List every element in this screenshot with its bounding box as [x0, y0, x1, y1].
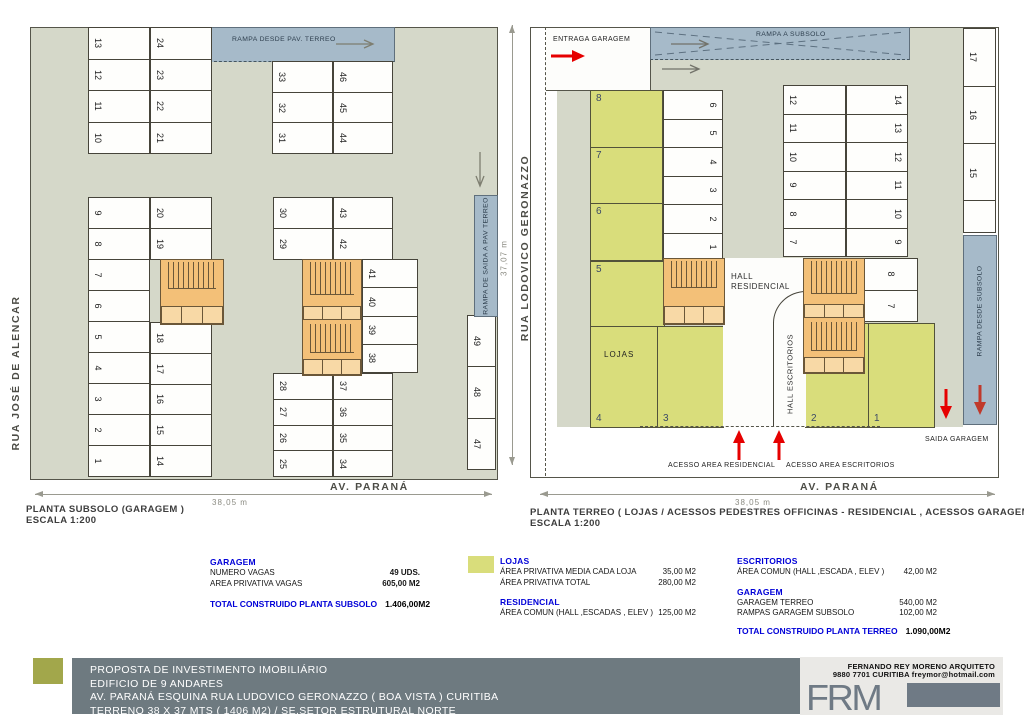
stall-number: 3 — [92, 393, 104, 405]
frm-logo: FRM — [806, 682, 880, 713]
stall-number: 13 — [892, 122, 904, 134]
stair-landing-cells — [664, 306, 724, 324]
drawing-sheet: RUA JOSÉ DE ALENCAR RAMPA DESDE PAV. TER… — [0, 0, 1024, 724]
stall-number: 41 — [366, 268, 378, 280]
dimension-line-37m — [512, 25, 513, 465]
stall-number: 10 — [92, 132, 104, 144]
stall-number: 11 — [892, 179, 904, 191]
parking-group-j: 4342 — [333, 197, 393, 260]
legend-row: NUMERO VAGAS49 UDS. — [210, 568, 420, 579]
legend-title: RESIDENCIAL — [500, 597, 696, 607]
legend-title: LOJAS — [500, 556, 696, 566]
parking-stall: 42 — [333, 228, 393, 260]
stair-treads — [671, 261, 717, 288]
loja-number: 6 — [596, 206, 602, 217]
parking-group-t-b: 121110987 — [783, 85, 846, 257]
hall-label-line: HALL — [731, 272, 790, 282]
stall-number: 2 — [92, 424, 104, 436]
hall-residencial-label: HALL RESIDENCIAL — [731, 272, 790, 291]
stall-number: 10 — [892, 208, 904, 220]
legend-title: GARAGEM — [210, 557, 420, 567]
parking-stall: 30 — [273, 197, 333, 229]
driveway-arrow-icon — [660, 63, 702, 75]
logo-olive-square — [33, 658, 63, 684]
stall-number: 10 — [787, 151, 799, 163]
legend-label: GARAGEM TERREO — [737, 598, 813, 609]
legend-row: ÁREA PRIVATIVA TOTAL280,00 M2 — [500, 578, 696, 589]
parking-stall: 20 — [150, 197, 212, 229]
parking-group-b: 24232221 — [150, 27, 212, 154]
parking-stall: 36 — [333, 399, 393, 426]
entry-red-arrow-icon — [550, 48, 586, 64]
loja-unit: 8 — [590, 90, 663, 148]
stall-number: 38 — [366, 352, 378, 364]
parking-group-k: 37363534 — [333, 373, 393, 477]
stall-number: 31 — [276, 132, 288, 144]
dimension-text-38m-left: 38,05 m — [212, 498, 248, 507]
parking-stall: 11 — [88, 90, 150, 123]
dimension-text-37m: 37,07 m — [500, 240, 509, 276]
stall-number: 7 — [787, 236, 799, 248]
stall-number: 47 — [471, 438, 483, 450]
parking-stall: 9 — [783, 171, 846, 201]
parking-stall: 29 — [273, 228, 333, 260]
legend-row: ÁREA COMUN (HALL ,ESCADA , ELEV )42,00 M… — [737, 567, 937, 578]
lojas-column: 876 — [590, 90, 663, 261]
parking-stall: 21 — [150, 122, 212, 155]
parking-stall: 8 — [863, 258, 918, 291]
legend-label: ÁREA COMUN (HALL ,ESCADAS , ELEV ) — [500, 608, 653, 619]
parking-stall: 35 — [333, 425, 393, 452]
ramp-to-basement: RAMPA A SUBSOLO — [650, 27, 910, 60]
ramp-to-basement-label: RAMPA A SUBSOLO — [753, 31, 829, 38]
parking-stall: 9 — [846, 228, 908, 258]
parking-stall: 22 — [150, 90, 212, 123]
parking-stall: 1 — [88, 445, 150, 477]
parking-group-e: 987654321 — [88, 197, 150, 477]
stairs-block-west — [160, 259, 224, 325]
stair-treads — [811, 261, 857, 294]
parking-stall: 13 — [846, 114, 908, 144]
parking-group-m: 494847 — [467, 315, 496, 470]
parking-stall: 3 — [663, 176, 723, 206]
stall-number: 8 — [885, 268, 897, 280]
stall-number: 46 — [337, 71, 349, 83]
parking-stall: 39 — [362, 316, 418, 345]
stall-number: 19 — [154, 238, 166, 250]
stair-treads — [310, 324, 354, 353]
parking-stall: 6 — [663, 90, 723, 120]
dimension-line-38m-left — [35, 494, 492, 495]
legend-value: 102,00 M2 — [899, 608, 937, 619]
ramp-exit-to-ground: RAMPA DE SAIDA A PAV TERREO — [474, 195, 498, 317]
dimension-line-38m-right — [540, 494, 995, 495]
ramp-from-ground-floor: RAMPA DESDE PAV. TERREO — [209, 27, 395, 62]
parking-group-c: 333231 — [272, 61, 333, 154]
terreo-title: PLANTA TERREO ( LOJAS / ACESSOS PEDESTRE… — [530, 507, 1024, 518]
legend-value: 35,00 M2 — [663, 567, 696, 578]
subsolo-title: PLANTA SUBSOLO (GARAGEM ) — [26, 504, 184, 515]
street-label-av-parana-right: AV. PARANÁ — [800, 481, 879, 493]
exit-red-arrow-icon — [973, 384, 987, 416]
loja-unit: 7 — [590, 147, 663, 205]
stall-number: 5 — [92, 331, 104, 343]
loja-unit: 6 — [590, 203, 663, 261]
stall-number: 44 — [337, 132, 349, 144]
ramp-from-basement: RAMPA DESDE SUBSOLO — [963, 235, 997, 425]
stair-treads — [811, 322, 857, 351]
parking-stall: 12 — [846, 142, 908, 172]
project-line-4: TERRENO 38 X 37 MTS ( 1406 M2) / SE.SETO… — [90, 705, 800, 719]
ramp-from-ground-floor-label: RAMPA DESDE PAV. TERREO — [232, 36, 336, 43]
parking-stall: 47 — [467, 418, 496, 470]
street-label-av-parana-left: AV. PARANÁ — [330, 481, 409, 493]
parking-stall: 37 — [333, 373, 393, 400]
empty-stall — [963, 200, 996, 233]
parking-stall: 23 — [150, 59, 212, 92]
parking-stall: 11 — [846, 171, 908, 201]
stall-number: 13 — [92, 37, 104, 49]
parking-stall: 7 — [88, 259, 150, 291]
hall-escritorios-label: HALL ESCRITORIOS — [786, 334, 795, 414]
stair-landing-cells — [161, 306, 223, 324]
parking-stall: 10 — [783, 142, 846, 172]
stall-number: 26 — [277, 432, 289, 444]
dimension-text-38m-right: 38,05 m — [735, 498, 771, 507]
stall-number: 39 — [366, 324, 378, 336]
stall-number: 9 — [92, 207, 104, 219]
stall-number: 9 — [787, 179, 799, 191]
stall-number: 32 — [276, 102, 288, 114]
loja-number: 2 — [811, 413, 817, 424]
stall-number: 22 — [154, 100, 166, 112]
stall-number: 3 — [707, 184, 719, 196]
parking-group-i: 28272625 — [273, 373, 333, 477]
parking-stall: 4 — [88, 352, 150, 384]
terreo-scale: ESCALA 1:200 — [530, 518, 600, 529]
loja-number: 4 — [596, 413, 602, 424]
parking-stall: 43 — [333, 197, 393, 229]
stairs-block-center — [302, 259, 362, 376]
stall-number: 30 — [277, 207, 289, 219]
parking-stall: 7 — [783, 228, 846, 258]
stair-landing-cells — [303, 306, 361, 320]
parking-stall: 49 — [467, 315, 496, 367]
loja-number: 8 — [596, 93, 602, 104]
legend-total-label: TOTAL CONSTRUIDO PLANTA SUBSOLO — [210, 599, 377, 609]
parking-stall: 16 — [150, 384, 212, 416]
stall-number: 49 — [471, 335, 483, 347]
loja-number: 7 — [596, 150, 602, 161]
parking-stall: 26 — [273, 425, 333, 452]
legend-label: NUMERO VAGAS — [210, 568, 275, 579]
stair-landing-cells — [804, 304, 864, 318]
legend-escritorios-garagem: ESCRITORIOS ÁREA COMUN (HALL ,ESCADA , E… — [737, 556, 937, 636]
parking-stall: 24 — [150, 27, 212, 60]
loja-4: 4 — [590, 326, 659, 428]
parking-group-t-e: 87 — [863, 258, 918, 322]
parking-group-l: 41403938 — [362, 259, 418, 373]
stall-number: 12 — [92, 69, 104, 81]
parking-group-d: 464544 — [333, 61, 393, 154]
legend-row: GARAGEM TERREO540,00 M2 — [737, 598, 937, 609]
stairs-block-residencial — [663, 258, 725, 325]
stall-number: 1 — [707, 241, 719, 253]
parking-stall: 5 — [88, 321, 150, 353]
stall-number: 6 — [92, 300, 104, 312]
stall-number: 43 — [337, 207, 349, 219]
legend-label: RAMPAS GARAGEM SUBSOLO — [737, 608, 854, 619]
stair-landing-cells — [303, 359, 361, 375]
subsolo-scale: ESCALA 1:200 — [26, 515, 96, 526]
parking-stall: 13 — [88, 27, 150, 60]
legend-total: TOTAL CONSTRUIDO PLANTA SUBSOLO1.406,00M… — [210, 599, 420, 609]
stall-number: 28 — [277, 380, 289, 392]
stall-number: 4 — [92, 362, 104, 374]
parking-stall: 38 — [362, 344, 418, 373]
project-line-3: AV. PARANÁ ESQUINA RUA LUDOVICO GERONAZZ… — [90, 691, 800, 705]
stall-number: 15 — [967, 167, 979, 179]
building-edge-dashed — [640, 426, 880, 427]
access-residencial-arrow-icon — [731, 430, 747, 461]
stall-number: 33 — [276, 71, 288, 83]
legend-lojas-residencial: LOJAS ÁREA PRIVATIVA MEDIA CADA LOJA35,0… — [500, 556, 696, 619]
parking-stall: 2 — [663, 204, 723, 234]
legend-label: AREA PRIVATIVA VAGAS — [210, 579, 302, 590]
lojas-area-label: LOJAS — [604, 350, 634, 359]
project-line-1: PROPOSTA DE INVESTIMENTO IMOBILIÁRIO — [90, 664, 800, 678]
access-residencial-label: ACESSO AREA RESIDENCIAL — [668, 462, 775, 469]
stall-number: 34 — [337, 458, 349, 470]
parking-stall: 12 — [783, 85, 846, 115]
parking-stall: 6 — [88, 290, 150, 322]
parking-stall: 17 — [963, 28, 996, 87]
parking-stall: 15 — [150, 414, 212, 446]
stairs-block-escritorios — [803, 258, 865, 374]
stall-number: 7 — [92, 269, 104, 281]
stall-number: 16 — [967, 109, 979, 121]
parking-stall: 46 — [333, 61, 393, 93]
stall-number: 40 — [366, 296, 378, 308]
down-arrow-icon — [473, 150, 487, 190]
parking-stall: 8 — [88, 228, 150, 260]
garage-entry-label: ENTRAGA GARAGEM — [553, 36, 630, 43]
stall-number: 35 — [337, 432, 349, 444]
stall-number: 9 — [892, 236, 904, 248]
parking-stall: 45 — [333, 92, 393, 124]
parking-stall: 34 — [333, 450, 393, 477]
stall-number: 37 — [337, 380, 349, 392]
stall-number: 42 — [337, 238, 349, 250]
stall-number: 17 — [967, 51, 979, 63]
hall-label-line: RESIDENCIAL — [731, 282, 790, 292]
parking-stall: 17 — [150, 353, 212, 385]
parking-stall: 18 — [150, 322, 212, 354]
stall-number: 11 — [787, 122, 799, 134]
garage-entry-area: ENTRAGA GARAGEM — [546, 28, 651, 91]
loja-number: 5 — [596, 264, 602, 275]
stall-number: 5 — [707, 127, 719, 139]
parking-stall: 10 — [846, 199, 908, 229]
stall-number: 7 — [885, 300, 897, 312]
stall-number: 21 — [154, 132, 166, 144]
exit-red-arrow-icon — [939, 388, 953, 420]
stall-number: 17 — [154, 363, 166, 375]
project-line-2: EDIFICIO DE 9 ANDARES — [90, 678, 800, 692]
legend-total-label: TOTAL CONSTRUIDO PLANTA TERREO — [737, 626, 898, 636]
legend-value: 125,00 M2 — [658, 608, 696, 619]
parking-stall: 16 — [963, 86, 996, 145]
property-line-dashed — [545, 27, 546, 476]
stall-number: 27 — [277, 406, 289, 418]
parking-group-a: 13121110 — [88, 27, 150, 154]
access-escritorios-arrow-icon — [771, 430, 787, 461]
stall-number: 23 — [154, 69, 166, 81]
stall-number: 18 — [154, 332, 166, 344]
stall-number: 8 — [92, 238, 104, 250]
parking-group-t-a: 654321 — [663, 90, 723, 262]
stall-number: 4 — [707, 156, 719, 168]
legend-row: ÁREA PRIVATIVA MEDIA CADA LOJA35,00 M2 — [500, 567, 696, 578]
parking-stall: 25 — [273, 450, 333, 477]
street-label-rua-jose-de-alencar: RUA JOSÉ DE ALENCAR — [10, 295, 22, 450]
parking-stall: 19 — [150, 228, 212, 260]
legend-label: ÁREA PRIVATIVA MEDIA CADA LOJA — [500, 567, 637, 578]
ramp-from-basement-label: RAMPA DESDE SUBSOLO — [977, 266, 984, 357]
parking-stall: 11 — [783, 114, 846, 144]
parking-group-g: 1817161514 — [150, 322, 212, 477]
stair-treads — [310, 262, 354, 295]
legend-title: ESCRITORIOS — [737, 556, 937, 566]
parking-stall: 10 — [88, 122, 150, 155]
title-bar: PROPOSTA DE INVESTIMENTO IMOBILIÁRIO EDI… — [72, 658, 800, 714]
stall-number: 6 — [707, 99, 719, 111]
stair-treads — [168, 262, 215, 289]
parking-stall: 41 — [362, 259, 418, 288]
legend-label: ÁREA COMUN (HALL ,ESCADA , ELEV ) — [737, 567, 884, 578]
legend-row: AREA PRIVATIVA VAGAS605,00 M2 — [210, 579, 420, 590]
legend-total-value: 1.090,00M2 — [906, 626, 951, 636]
loja-1: 1 — [868, 323, 935, 428]
parking-stall: 28 — [273, 373, 333, 400]
architect-panel: FERNANDO REY MORENO ARQUITETO 9880 7701 … — [800, 657, 1003, 715]
stall-number: 29 — [277, 238, 289, 250]
saida-garagem-label: SAIDA GARAGEM — [925, 436, 989, 443]
legend-total-value: 1.406,00M2 — [385, 599, 430, 609]
parking-group-t-c: 14131211109 — [846, 85, 908, 257]
legend-value: 42,00 M2 — [904, 567, 937, 578]
legend-value: 540,00 M2 — [899, 598, 937, 609]
street-label-rua-lodovico-geronazzo: RUA LODOVICO GERONAZZO — [519, 155, 531, 341]
stall-number: 12 — [892, 151, 904, 163]
stall-number: 14 — [154, 455, 166, 467]
stall-number: 36 — [337, 406, 349, 418]
stall-number: 16 — [154, 393, 166, 405]
stall-number: 24 — [154, 37, 166, 49]
stall-number: 11 — [92, 100, 104, 112]
hall-escritorios-corridor: HALL ESCRITORIOS — [773, 322, 806, 427]
legend-garagem-subsolo: GARAGEM NUMERO VAGAS49 UDS. AREA PRIVATI… — [210, 557, 420, 609]
stall-number: 1 — [92, 455, 104, 467]
parking-stall: 32 — [272, 92, 333, 124]
parking-group-f: 2019 — [150, 197, 212, 260]
loja-5: 5 — [590, 261, 665, 328]
stall-number: 45 — [337, 102, 349, 114]
legend-label: ÁREA PRIVATIVA TOTAL — [500, 578, 590, 589]
frm-logo-bar — [907, 683, 1000, 707]
legend-value: 49 UDS. — [390, 568, 420, 579]
legend-row: RAMPAS GARAGEM SUBSOLO102,00 M2 — [737, 608, 937, 619]
parking-stall: 3 — [88, 383, 150, 415]
parking-stall: 8 — [783, 199, 846, 229]
access-escritorios-label: ACESSO AREA ESCRITORIOS — [786, 462, 895, 469]
stall-number: 12 — [787, 94, 799, 106]
parking-stall: 40 — [362, 287, 418, 316]
stall-number: 20 — [154, 207, 166, 219]
legend-value: 280,00 M2 — [658, 578, 696, 589]
parking-stall: 27 — [273, 399, 333, 426]
legend-value: 605,00 M2 — [382, 579, 420, 590]
ramp-direction-arrow-icon — [669, 38, 711, 50]
parking-stall: 48 — [467, 366, 496, 418]
stall-number: 2 — [707, 213, 719, 225]
parking-group-t-d: 171615 — [963, 28, 996, 202]
stall-number: 15 — [154, 424, 166, 436]
ramp-direction-arrow-icon — [334, 38, 376, 50]
parking-stall: 7 — [863, 290, 918, 323]
stair-landing-cells — [804, 357, 864, 373]
lojas-color-swatch — [468, 556, 494, 573]
parking-stall: 14 — [150, 445, 212, 477]
legend-title: GARAGEM — [737, 587, 937, 597]
parking-stall: 9 — [88, 197, 150, 229]
parking-stall: 14 — [846, 85, 908, 115]
stall-number: 14 — [892, 94, 904, 106]
parking-stall: 5 — [663, 119, 723, 149]
parking-stall: 12 — [88, 59, 150, 92]
parking-stall: 44 — [333, 122, 393, 154]
parking-stall: 4 — [663, 147, 723, 177]
parking-stall: 31 — [272, 122, 333, 154]
loja-3: 3 — [657, 326, 724, 428]
stall-number: 25 — [277, 458, 289, 470]
parking-stall: 15 — [963, 143, 996, 202]
stall-number: 8 — [787, 208, 799, 220]
loja-number: 3 — [663, 413, 669, 424]
parking-group-h: 3029 — [273, 197, 333, 260]
parking-stall: 33 — [272, 61, 333, 93]
legend-total: TOTAL CONSTRUIDO PLANTA TERREO1.090,00M2 — [737, 626, 937, 636]
loja-number: 1 — [874, 413, 880, 424]
stall-number: 48 — [471, 386, 483, 398]
legend-row: ÁREA COMUN (HALL ,ESCADAS , ELEV )125,00… — [500, 608, 696, 619]
parking-stall: 2 — [88, 414, 150, 446]
ramp-exit-label: RAMPA DE SAIDA A PAV TERREO — [483, 197, 490, 315]
